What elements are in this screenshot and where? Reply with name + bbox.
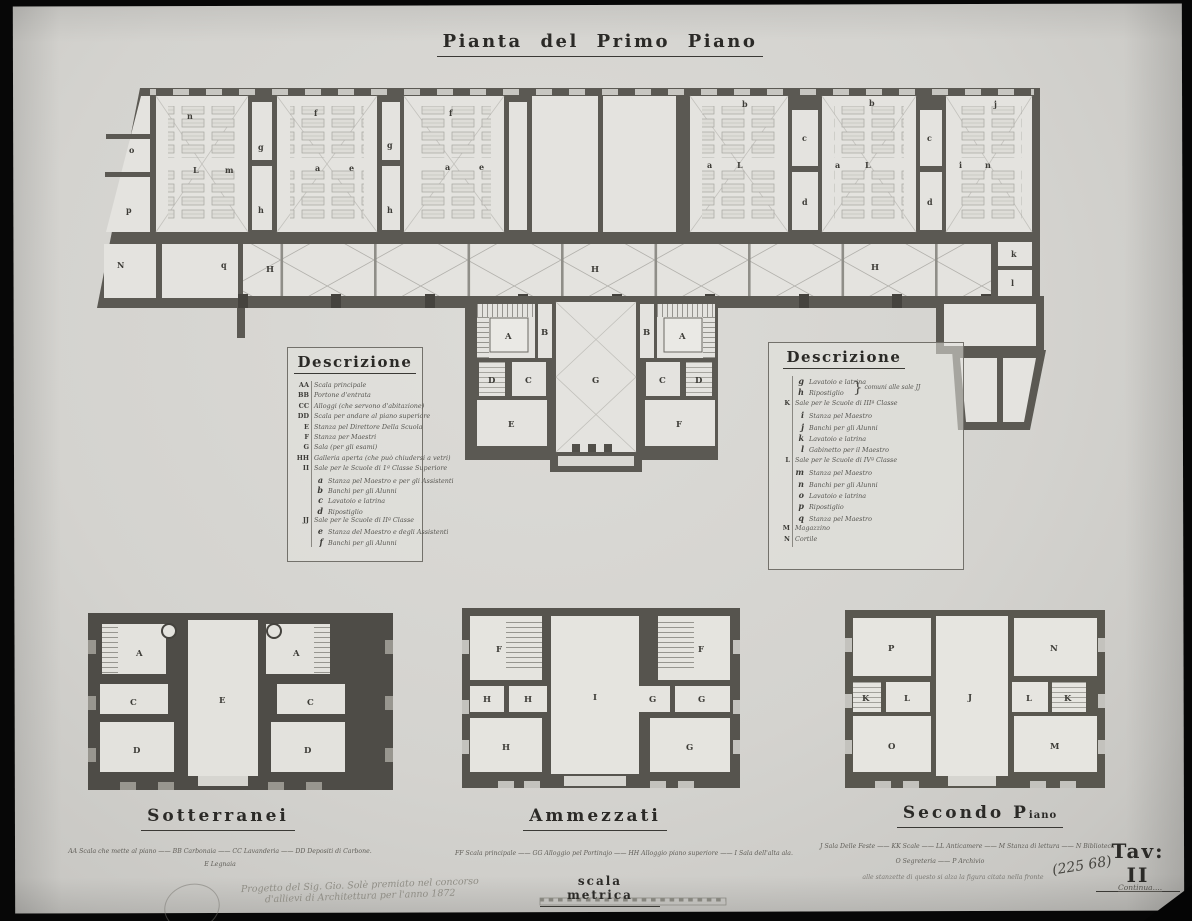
svg-text:o: o bbox=[129, 145, 135, 155]
svg-text:a: a bbox=[445, 162, 450, 172]
svg-text:n: n bbox=[187, 111, 193, 121]
legend-brace-note: } comuni alle sale JJ bbox=[853, 378, 920, 396]
svg-text:k: k bbox=[1011, 249, 1017, 259]
svg-text:f: f bbox=[314, 108, 318, 118]
svg-text:D: D bbox=[304, 746, 312, 756]
svg-text:A: A bbox=[678, 332, 686, 342]
continuation-note: Continua.... bbox=[1118, 883, 1162, 892]
svg-text:E: E bbox=[508, 420, 515, 430]
svg-text:H: H bbox=[483, 695, 491, 705]
legend-box-right: Descrizione } comuni alle sale JJ gLavat… bbox=[768, 342, 964, 570]
svg-text:a: a bbox=[315, 163, 320, 173]
svg-text:D: D bbox=[488, 376, 496, 386]
legend-divider bbox=[792, 376, 793, 547]
legend-row: nBanchi per gli Alunni bbox=[775, 479, 925, 490]
legend-right-title: Descrizione bbox=[769, 348, 919, 369]
svg-text:p: p bbox=[126, 205, 132, 215]
svg-text:G: G bbox=[592, 376, 599, 386]
svg-text:L: L bbox=[865, 160, 871, 170]
svg-text:g: g bbox=[258, 142, 264, 152]
svg-text:C: C bbox=[130, 698, 137, 708]
svg-text:H: H bbox=[871, 263, 879, 273]
svg-text:C: C bbox=[659, 376, 666, 386]
svg-text:H: H bbox=[266, 265, 274, 275]
legend-row: EStanza pel Direttore Della Scuola bbox=[294, 423, 418, 433]
svg-text:e: e bbox=[479, 162, 484, 172]
svg-text:B: B bbox=[643, 328, 650, 338]
svg-text:M: M bbox=[1050, 742, 1060, 752]
svg-text:m: m bbox=[225, 165, 234, 175]
legend-row: LSale per le Scuole di IVª Classe bbox=[775, 456, 925, 467]
legend-row: GSala (per gli esami) bbox=[294, 443, 418, 453]
legend-row: DDScala per andare al piano superiore bbox=[294, 412, 418, 422]
svg-text:L: L bbox=[1026, 694, 1032, 704]
basement-title: Sotterranei bbox=[128, 806, 308, 831]
svg-text:F: F bbox=[676, 420, 682, 430]
legend-row: pRipostiglio bbox=[775, 501, 925, 512]
svg-text:F: F bbox=[698, 645, 704, 655]
legend-row: jBanchi per gli Alunni bbox=[775, 422, 925, 433]
second-floor-legend-line1: J Sala Delle Feste —— KK Scale —— LL Ant… bbox=[820, 843, 1100, 850]
svg-text:P: P bbox=[888, 644, 895, 654]
svg-text:j: j bbox=[993, 99, 997, 109]
svg-text:B: B bbox=[541, 328, 548, 338]
svg-text:E: E bbox=[219, 696, 226, 706]
svg-text:O: O bbox=[888, 742, 896, 752]
second-floor-legend-line2: O Segreteria —— P Archivio bbox=[820, 858, 1060, 865]
svg-text:N: N bbox=[1050, 644, 1058, 654]
legend-row: KSale per le Scuole di IIIª Classe bbox=[775, 399, 925, 410]
legend-box-left: Descrizione AAScala principale BBPortone… bbox=[287, 347, 423, 562]
legend-right-entries: } comuni alle sale JJ gLavatoio e latrin… bbox=[775, 376, 925, 547]
legend-row: mStanza pel Maestro bbox=[775, 467, 925, 478]
legend-row: fBanchi per gli Alunni bbox=[294, 537, 418, 547]
svg-text:e: e bbox=[349, 163, 354, 173]
svg-text:q: q bbox=[221, 260, 227, 270]
legend-row: BBPortone d'entrata bbox=[294, 391, 418, 401]
svg-text:K: K bbox=[1064, 694, 1072, 704]
svg-text:L: L bbox=[737, 160, 743, 170]
legend-row: HHGalleria aperta (che può chiudersi a v… bbox=[294, 454, 418, 464]
legend-row: IISale per le Scuole di 1ª Classe Superi… bbox=[294, 464, 418, 474]
legend-row: NCortile bbox=[775, 535, 925, 546]
svg-text:L: L bbox=[193, 165, 199, 175]
legend-row: lGabinetto per il Maestro bbox=[775, 444, 925, 455]
svg-text:F: F bbox=[496, 645, 502, 655]
svg-text:A: A bbox=[504, 332, 512, 342]
legend-left-title: Descrizione bbox=[288, 353, 422, 374]
legend-row: qStanza pel Maestro bbox=[775, 513, 925, 524]
svg-text:H: H bbox=[524, 695, 532, 705]
svg-text:f: f bbox=[449, 108, 453, 118]
second-floor-title: Secondo Piano bbox=[885, 803, 1075, 828]
svg-text:A: A bbox=[135, 649, 143, 659]
svg-text:D: D bbox=[133, 746, 141, 756]
mezzanine-legend-line1: FF Scala principale —— GG Alloggio pel P… bbox=[455, 850, 785, 857]
basement-legend-line2: E Legnaia bbox=[60, 861, 380, 868]
svg-text:i: i bbox=[959, 160, 962, 170]
svg-text:d: d bbox=[927, 197, 933, 207]
svg-text:b: b bbox=[869, 98, 875, 108]
svg-text:c: c bbox=[802, 133, 807, 143]
svg-text:D: D bbox=[695, 376, 703, 386]
legend-row: JJSale per le Scuole di IIª Classe bbox=[294, 516, 418, 526]
legend-row: MMagazzino bbox=[775, 524, 925, 535]
svg-text:C: C bbox=[525, 376, 532, 386]
svg-text:h: h bbox=[258, 205, 264, 215]
basement-legend-line1: AA Scala che mette al piano —— BB Carbon… bbox=[60, 848, 380, 855]
svg-text:a: a bbox=[707, 160, 712, 170]
svg-text:H: H bbox=[502, 743, 510, 753]
svg-text:h: h bbox=[387, 205, 393, 215]
mezzanine-plan: F F H H I G G H G bbox=[462, 608, 740, 788]
legend-row: cLavatoio e latrina bbox=[294, 495, 418, 505]
legend-left-entries: AAScala principale BBPortone d'entrata C… bbox=[294, 381, 418, 547]
second-floor-plan: P N K L J L K O M bbox=[845, 610, 1105, 788]
legend-row: AAScala principale bbox=[294, 381, 418, 391]
svg-text:a: a bbox=[835, 160, 840, 170]
svg-text:A: A bbox=[292, 649, 300, 659]
legend-row: kLavatoio e latrina bbox=[775, 433, 925, 444]
legend-row: dRipostiglio bbox=[294, 506, 418, 516]
mezzanine-title: Ammezzati bbox=[505, 806, 685, 831]
svg-text:G: G bbox=[686, 743, 693, 753]
svg-text:J: J bbox=[967, 693, 972, 703]
plans-drawing: n f f o g g L m a e a e p h h N q H H H bbox=[0, 0, 1192, 921]
svg-text:L: L bbox=[904, 694, 910, 704]
basement-plan: A A C C E D D bbox=[88, 613, 393, 790]
svg-text:C: C bbox=[307, 698, 314, 708]
legend-row: iStanza pel Maestro bbox=[775, 410, 925, 421]
svg-text:g: g bbox=[387, 140, 393, 150]
legend-row: FStanza per Maestri bbox=[294, 433, 418, 443]
legend-row: bBanchi per gli Alunni bbox=[294, 485, 418, 495]
svg-text:K: K bbox=[862, 694, 870, 704]
svg-text:I: I bbox=[593, 693, 597, 703]
second-floor-note: alle stanzette di questo si alza la figu… bbox=[828, 874, 1078, 881]
legend-divider bbox=[311, 381, 312, 547]
legend-row: CCAlloggi (che servono d'abitazione) bbox=[294, 402, 418, 412]
svg-text:b: b bbox=[742, 99, 748, 109]
svg-text:c: c bbox=[927, 133, 932, 143]
svg-text:d: d bbox=[802, 197, 808, 207]
svg-text:n: n bbox=[985, 160, 991, 170]
photograph-of-architectural-drawing: n f f o g g L m a e a e p h h N q H H H bbox=[0, 0, 1192, 921]
svg-text:N: N bbox=[117, 260, 124, 270]
legend-row: aStanza pel Maestro e per gli Assistenti bbox=[294, 475, 418, 485]
svg-text:H: H bbox=[591, 265, 599, 275]
svg-text:G: G bbox=[649, 695, 656, 705]
page-title: Pianta del Primo Piano bbox=[433, 31, 767, 57]
legend-row: oLavatoio e latrina bbox=[775, 490, 925, 501]
scale-label: scala metrica bbox=[540, 874, 660, 907]
legend-row: eStanza del Maestro e degli Assistenti bbox=[294, 526, 418, 536]
svg-text:G: G bbox=[698, 695, 705, 705]
svg-text:l: l bbox=[1011, 278, 1014, 288]
